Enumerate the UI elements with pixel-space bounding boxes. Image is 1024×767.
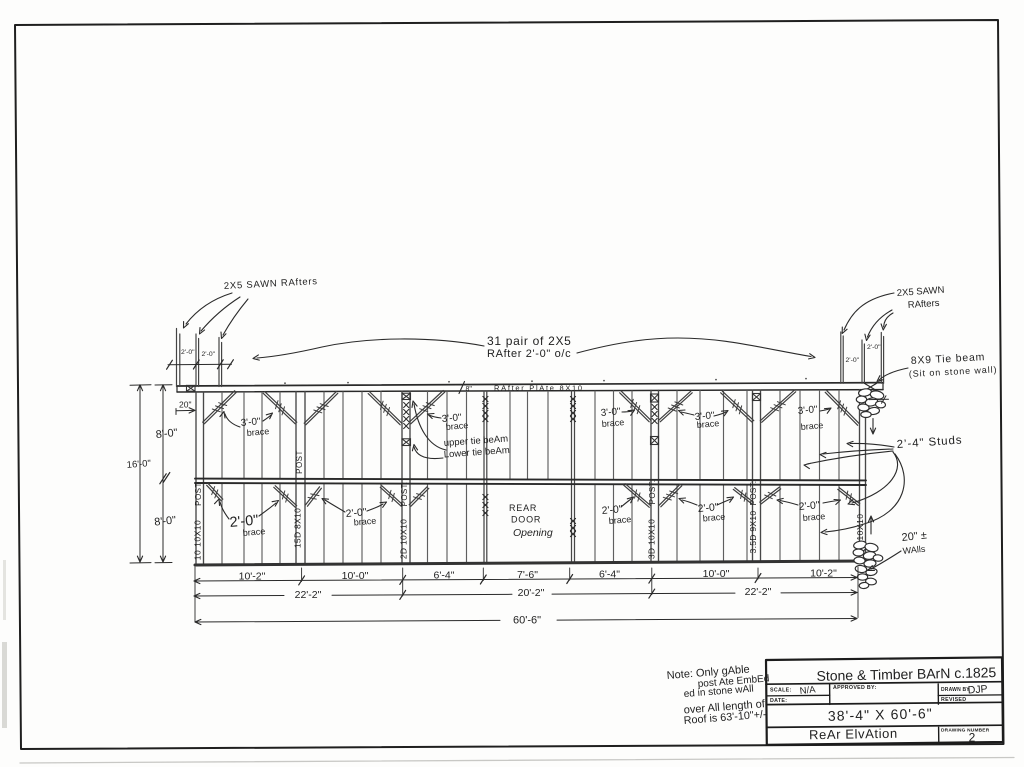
svg-text:brace: brace: [702, 512, 725, 524]
svg-text:8'-0": 8'-0": [154, 514, 177, 528]
svg-text:2'-0": 2'-0": [202, 351, 216, 358]
svg-text:6'-4": 6'-4": [599, 569, 620, 581]
svg-text:DRAWN BY: DRAWN BY: [941, 687, 970, 693]
svg-text:8": 8": [466, 386, 473, 393]
svg-text:20'-2": 20'-2": [518, 587, 545, 599]
svg-text:brace: brace: [246, 426, 269, 438]
svg-text:DOOR: DOOR: [511, 515, 541, 525]
svg-text:10'-2": 10'-2": [239, 571, 266, 583]
svg-text:3'-0": 3'-0": [797, 404, 818, 417]
svg-text:brace: brace: [445, 420, 468, 432]
svg-text:POST: POST: [194, 482, 203, 506]
svg-text:RAfters: RAfters: [907, 298, 940, 311]
svg-text:6'-4": 6'-4": [434, 570, 455, 582]
svg-text:brace: brace: [608, 514, 631, 526]
svg-text:POST: POST: [295, 450, 304, 474]
svg-text:RAfter PlAte 8X10: RAfter PlAte 8X10: [494, 384, 584, 393]
svg-text:brace: brace: [696, 418, 719, 430]
svg-text:POST:: POST:: [749, 481, 758, 506]
svg-text:Opening: Opening: [513, 527, 553, 539]
svg-text:10X10: 10X10: [855, 513, 865, 540]
svg-text:31 pair of 2X5: 31 pair of 2X5: [487, 334, 572, 348]
svg-text:DJP: DJP: [967, 683, 988, 696]
svg-text:2: 2: [969, 731, 976, 745]
svg-text:2'-0": 2'-0": [181, 349, 195, 356]
svg-text:DATE:: DATE:: [770, 698, 787, 704]
svg-text:3.5D 9X10: 3.5D 9X10: [748, 511, 758, 554]
svg-text:22'-2": 22'-2": [295, 589, 322, 601]
svg-text:10'-2": 10'-2": [810, 568, 837, 580]
svg-text:SCALE:: SCALE:: [770, 688, 792, 694]
svg-text:3D 10X10: 3D 10X10: [647, 519, 657, 559]
svg-text:brace: brace: [802, 511, 825, 523]
svg-text:60'-6": 60'-6": [513, 615, 541, 627]
svg-text:10'-0": 10'-0": [703, 568, 730, 580]
svg-text:16'-0": 16'-0": [126, 458, 151, 471]
svg-text:REVISED: REVISED: [941, 697, 966, 703]
svg-text:brace: brace: [242, 526, 265, 538]
svg-text:20": 20": [179, 400, 191, 410]
svg-text:RAfter 2'-0" o/c: RAfter 2'-0" o/c: [487, 348, 571, 360]
svg-text:22'-2": 22'-2": [745, 586, 772, 598]
svg-text:2D 10X10: 2D 10X10: [399, 519, 409, 559]
svg-text:8'-0": 8'-0": [155, 427, 178, 441]
svg-text:POST:: POST:: [400, 482, 409, 507]
svg-text:ReAr ElvAtion: ReAr ElvAtion: [809, 726, 898, 743]
svg-text:brace: brace: [800, 420, 823, 432]
svg-text:10 10X10: 10 10X10: [193, 520, 203, 560]
svg-text:2'-0": 2'-0": [867, 344, 881, 351]
svg-text:POST:: POST:: [648, 480, 657, 505]
svg-text:10'-0": 10'-0": [342, 570, 369, 582]
svg-text:brace: brace: [601, 417, 624, 429]
svg-text:REAR: REAR: [509, 503, 537, 513]
svg-text:15D 8X10: 15D 8X10: [293, 508, 303, 548]
svg-text:APPROVED BY:: APPROVED BY:: [833, 685, 877, 691]
svg-text:DRAWING NUMBER: DRAWING NUMBER: [941, 728, 990, 734]
svg-text:brace: brace: [353, 516, 376, 528]
svg-text:N/A: N/A: [799, 684, 817, 697]
svg-text:38'-4" X 60'-6": 38'-4" X 60'-6": [828, 705, 933, 724]
svg-text:2'-0": 2'-0": [846, 357, 860, 364]
svg-text:7'-6": 7'-6": [517, 569, 538, 581]
